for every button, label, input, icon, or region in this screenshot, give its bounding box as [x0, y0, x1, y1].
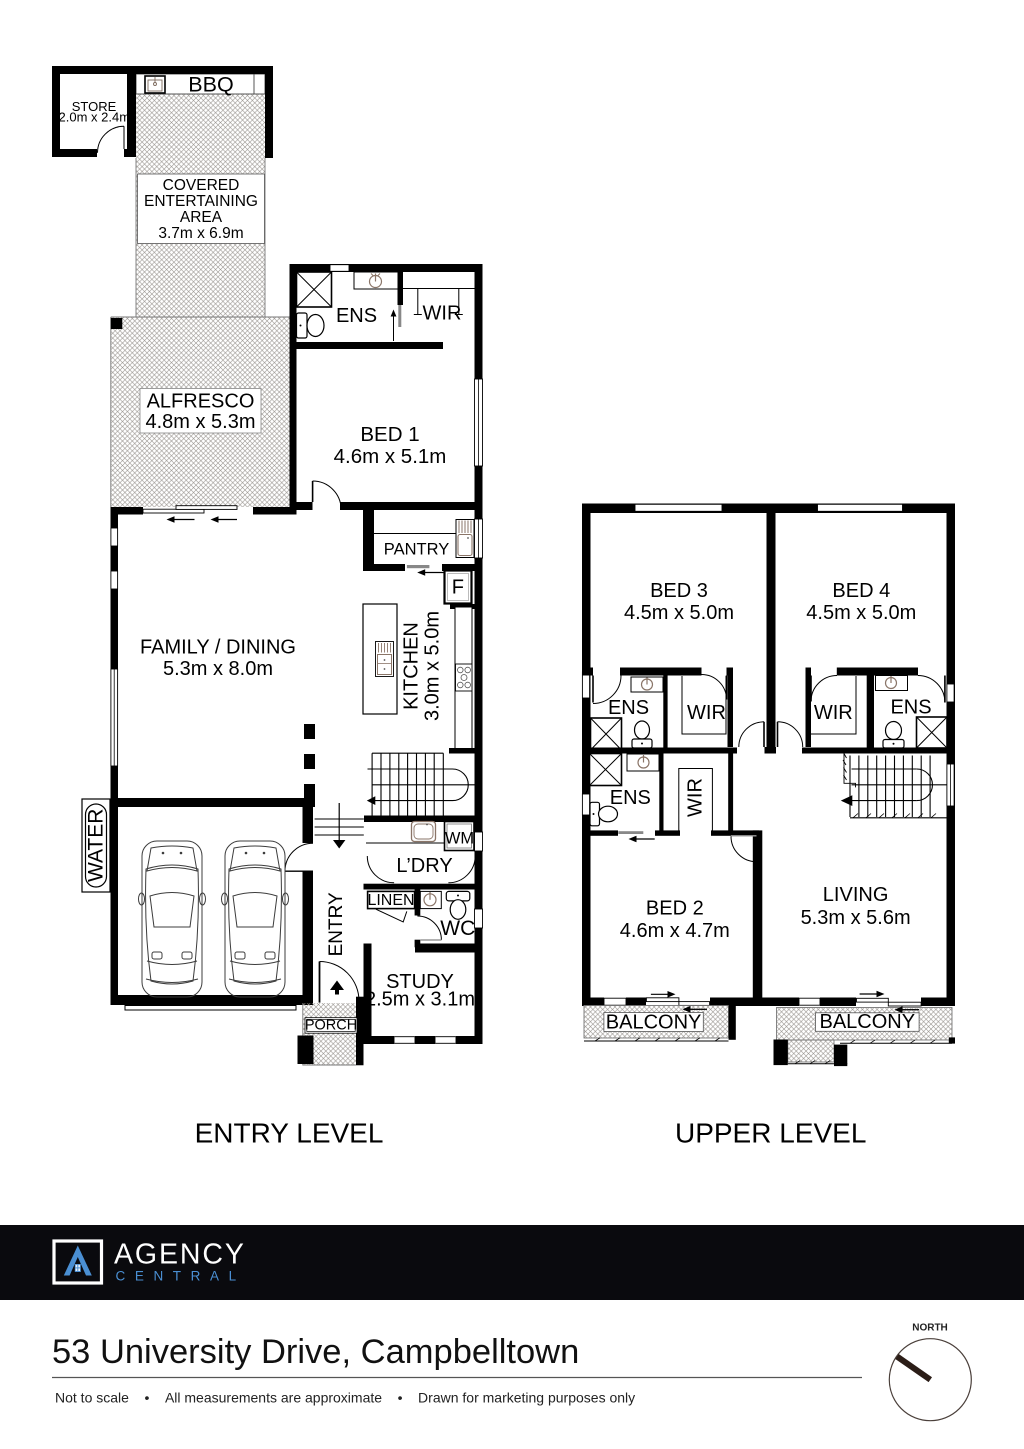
svg-text:WIR: WIR [814, 702, 853, 724]
svg-text:BALCONY: BALCONY [606, 1011, 702, 1033]
svg-text:BED 2: BED 2 [646, 897, 704, 919]
svg-text:ENS: ENS [890, 697, 931, 719]
svg-text:WC: WC [440, 917, 475, 940]
svg-text:AREA: AREA [180, 209, 223, 226]
svg-text:WIR: WIR [684, 778, 706, 817]
svg-text:LIVING: LIVING [823, 884, 889, 906]
svg-text:ALFRESCO: ALFRESCO [147, 391, 255, 413]
svg-text:3.0m x 5.0m: 3.0m x 5.0m [422, 611, 444, 721]
svg-text:4.5m x 5.0m: 4.5m x 5.0m [624, 602, 734, 624]
svg-text:4.6m x 4.7m: 4.6m x 4.7m [620, 920, 730, 942]
svg-text:BED 3: BED 3 [650, 580, 708, 602]
svg-text:2.0m x 2.4m: 2.0m x 2.4m [59, 110, 131, 125]
svg-text:WIR: WIR [687, 702, 726, 724]
svg-text:FAMILY / DINING: FAMILY / DINING [140, 637, 296, 659]
svg-text:BALCONY: BALCONY [820, 1011, 916, 1033]
svg-text:4.6m x 5.1m: 4.6m x 5.1m [334, 445, 447, 468]
svg-text:COVERED: COVERED [163, 177, 240, 194]
svg-text:3.7m x 6.9m: 3.7m x 6.9m [158, 225, 243, 242]
svg-text:UPPER LEVEL: UPPER LEVEL [675, 1118, 866, 1149]
svg-text:L’DRY: L’DRY [396, 855, 452, 877]
svg-text:5.3m x 5.6m: 5.3m x 5.6m [801, 907, 911, 929]
svg-text:ENTERTAINING: ENTERTAINING [144, 193, 258, 210]
svg-text:53 University Drive, Campbellt: 53 University Drive, Campbelltown [52, 1333, 579, 1371]
svg-text:BBQ: BBQ [188, 73, 233, 97]
svg-text:F: F [452, 577, 464, 599]
svg-text:ENS: ENS [610, 787, 651, 809]
svg-text:PANTRY: PANTRY [384, 541, 449, 559]
svg-text:LINEN: LINEN [367, 892, 414, 909]
svg-text:Not to scale • All measu: Not to scale • All measurements are appr… [55, 1390, 635, 1406]
svg-text:WIR: WIR [423, 303, 462, 325]
svg-text:ENTRY LEVEL: ENTRY LEVEL [195, 1118, 384, 1149]
svg-text:AGENCY: AGENCY [114, 1239, 246, 1271]
svg-text:WM: WM [445, 830, 474, 848]
svg-text:4.8m x 5.3m: 4.8m x 5.3m [145, 411, 255, 433]
svg-text:ENS: ENS [608, 697, 649, 719]
svg-text:ENS: ENS [336, 305, 377, 327]
svg-text:ENTRY: ENTRY [326, 892, 347, 956]
svg-text:4.5m x 5.0m: 4.5m x 5.0m [806, 602, 916, 624]
svg-text:2.5m x 3.1m: 2.5m x 3.1m [365, 989, 475, 1011]
svg-text:NORTH: NORTH [912, 1323, 948, 1334]
svg-text:BED 1: BED 1 [360, 423, 419, 446]
svg-text:CENTRAL: CENTRAL [116, 1269, 246, 1284]
svg-text:WATER: WATER [84, 809, 107, 883]
svg-text:PORCH: PORCH [305, 1018, 357, 1034]
svg-text:KITCHEN: KITCHEN [401, 622, 423, 710]
svg-text:5.3m x 8.0m: 5.3m x 8.0m [163, 658, 273, 680]
svg-text:BED 4: BED 4 [832, 580, 890, 602]
